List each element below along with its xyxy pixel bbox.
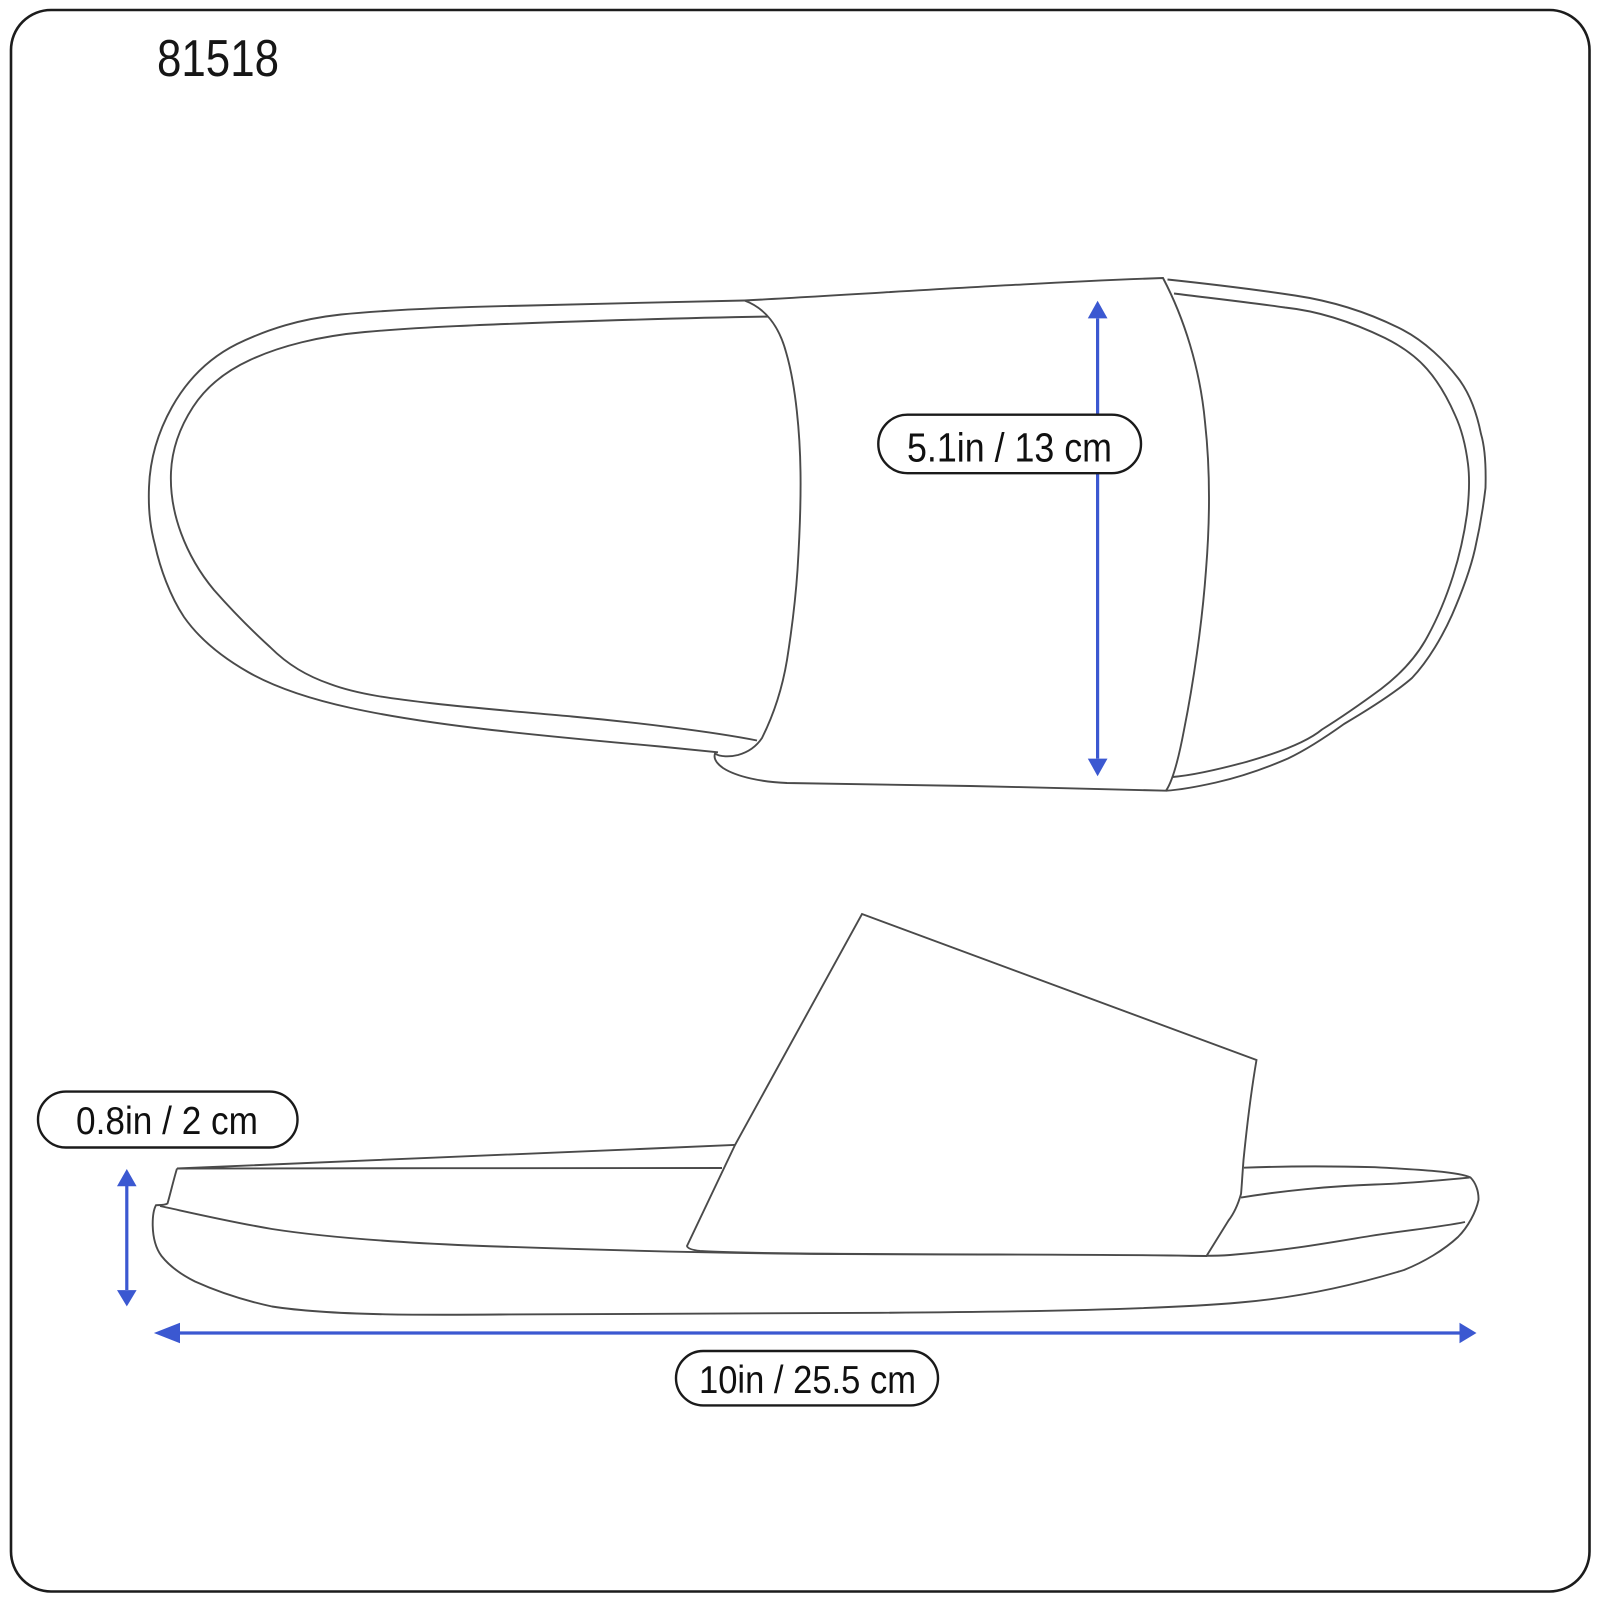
svg-text:0.8in / 2 cm: 0.8in / 2 cm	[76, 1100, 258, 1143]
svg-text:5.1in / 13 cm: 5.1in / 13 cm	[907, 425, 1112, 471]
svg-text:10in / 25.5 cm: 10in / 25.5 cm	[699, 1359, 916, 1402]
svg-text:81518: 81518	[157, 30, 279, 88]
